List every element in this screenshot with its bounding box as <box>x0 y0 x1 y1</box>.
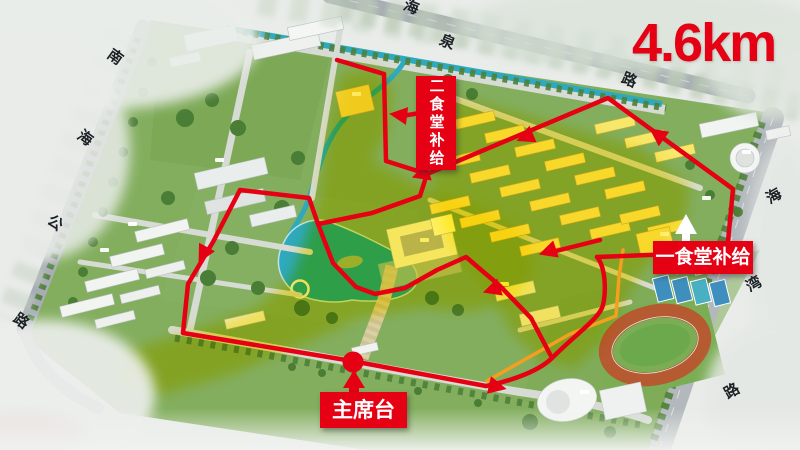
distance-label: 4.6km <box>632 12 775 74</box>
supply-station-label-canteen1: 一食堂补给 <box>653 241 753 274</box>
supply-station-label-canteen2: 二食堂补给 <box>416 76 456 170</box>
rostrum-up-arrow-icon <box>343 370 365 388</box>
canteen1-up-arrow-icon <box>675 214 697 234</box>
campus-race-map: 4.6km 二食堂补给 一食堂补给 主席台 南 海 公 路 海 泉 路 海 湾 … <box>0 0 800 450</box>
rostrum-label: 主席台 <box>320 392 407 428</box>
